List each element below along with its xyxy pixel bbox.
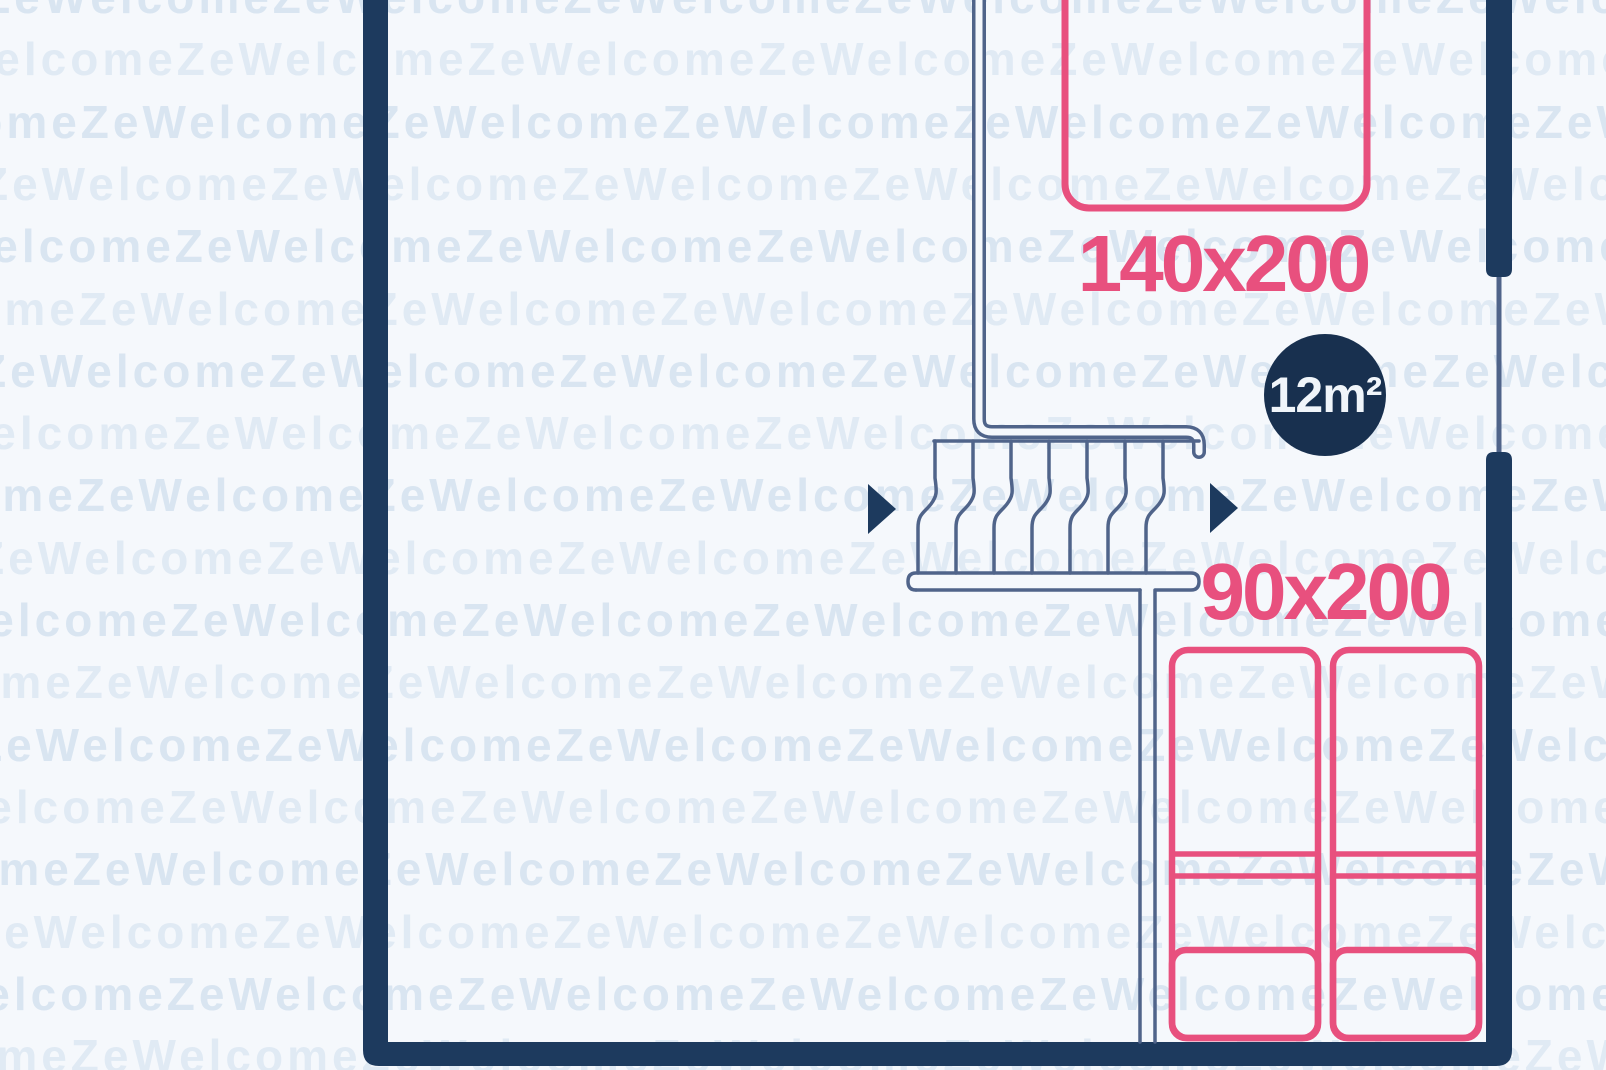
bed-size-label-single: 90x200 [1190,552,1460,632]
interior-wall-lower [1140,590,1155,1042]
single-bed-left [1172,650,1318,1038]
single-bed-right-outline [1333,650,1479,1038]
single-bed-left-outline [1172,650,1318,1038]
wall-right-upper [1486,0,1512,277]
wall-left-bottom-right [363,0,1512,1066]
pillow [1172,950,1318,1038]
stair-bottom-rail [908,573,1199,590]
direction-arrow-right [1210,483,1238,533]
floorplan-drawing [0,0,1606,1070]
area-badge-label: 12m² [1269,370,1382,420]
beds [1065,0,1479,1038]
single-bed-right [1333,650,1479,1038]
outer-walls [363,0,1512,1066]
double-bed-outline [1065,0,1367,208]
bed-size-label-double: 140x200 [1065,224,1381,304]
direction-arrow-left [868,484,896,534]
floorplan-canvas: ZeWelcomeZeWelcomeZeWelcomeZeWelcomeZeWe… [0,0,1606,1070]
stair-treads [918,441,1164,573]
pillow [1333,950,1479,1038]
area-badge: 12m² [1264,334,1386,456]
